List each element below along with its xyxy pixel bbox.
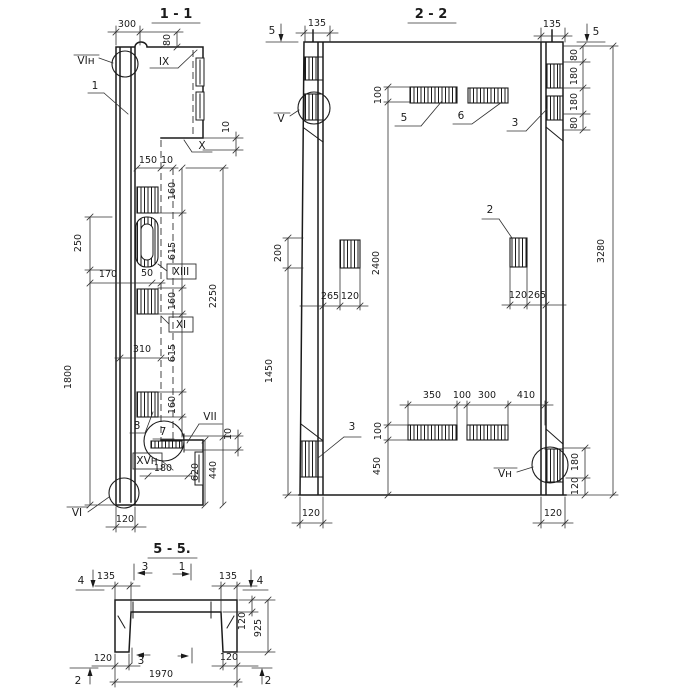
embedded-plate-2 (510, 238, 527, 267)
pos-3-bottom: 3 (349, 421, 356, 433)
dim-450: 450 (372, 457, 383, 475)
pos-6: 6 (458, 110, 465, 122)
dim-410: 410 (517, 390, 535, 401)
dim-615-1: 615 (167, 242, 178, 260)
embedded-plate-6 (468, 88, 508, 103)
dim-925: 925 (253, 619, 264, 637)
dim-10-step: 10 (161, 155, 173, 166)
dim-80-tr2: 80 (569, 117, 580, 129)
embedded-plate (467, 425, 508, 440)
pos-7: 7 (160, 426, 167, 438)
embedded-plate (137, 187, 158, 213)
rib-plate (302, 441, 316, 477)
callout-ix: IX (159, 56, 169, 68)
dim-160-3: 160 (167, 396, 178, 414)
dim-1800: 1800 (63, 365, 74, 389)
dim-620: 620 (190, 463, 201, 481)
dim-1970: 1970 (149, 669, 173, 680)
callout-vii: VII (203, 411, 216, 423)
dim-300: 300 (118, 19, 136, 30)
labels-layer: 30080VIн1IXX1015010160615160615160225044… (63, 18, 607, 687)
dim-120-mr: 120 (509, 290, 527, 301)
callout-xi: XI (176, 319, 186, 331)
dim-120-leg-l: 120 (94, 653, 112, 664)
dim-200: 200 (273, 244, 284, 262)
callout-vi: VI (72, 507, 82, 519)
marker-4-left: 4 (78, 575, 85, 587)
dim-180-tr2: 180 (569, 93, 580, 111)
rib-plate (547, 64, 560, 88)
section-2-2: 2 - 2 (266, 7, 618, 528)
embedded-plate (137, 289, 158, 314)
marker-4-right: 4 (257, 575, 264, 587)
dim-2250: 2250 (208, 284, 219, 308)
rib-plate (305, 94, 318, 120)
section-2-2-title: 2 - 2 (415, 7, 448, 22)
marker-1-top: 1 (179, 561, 186, 573)
pos-1: 1 (92, 80, 99, 92)
dim-80-tr1: 80 (569, 49, 580, 61)
marker-2-left: 2 (75, 675, 82, 687)
dim-135-right: 135 (543, 19, 561, 30)
marker-3-bottom: 3 (138, 655, 145, 667)
dim-615-2: 615 (167, 344, 178, 362)
dimension-ticks-5-5 (112, 583, 271, 685)
dim-350: 350 (423, 390, 441, 401)
callout-x: X (198, 140, 205, 152)
pos-5: 5 (401, 112, 408, 124)
rib-plate (547, 96, 560, 120)
dim-50: 50 (141, 268, 153, 279)
dim-120-ml: 120 (341, 291, 359, 302)
dim-80: 80 (162, 34, 173, 46)
callout-vi-n-top: VIн (77, 55, 94, 67)
dim-310: 310 (133, 344, 151, 355)
marker-5-right: 5 (593, 26, 600, 38)
callout-v: V (277, 113, 285, 125)
dim-120-br: 120 (570, 477, 581, 495)
dim-250: 250 (73, 234, 84, 252)
dim-120-br-col: 120 (544, 508, 562, 519)
dim-100-top: 100 (373, 86, 384, 104)
dim-100-b: 100 (453, 390, 471, 401)
dim-10-console: 10 (223, 428, 234, 440)
pos-8: 8 (134, 420, 141, 432)
dimension-ticks-2-2 (285, 30, 616, 526)
dim-440: 440 (208, 461, 219, 479)
dim-180-s11: 180 (154, 463, 172, 474)
dim-160-2: 160 (167, 292, 178, 310)
dim-120-s11: 120 (116, 514, 134, 525)
section-cut-arrows-2-2 (279, 34, 590, 42)
dim-10-top: 10 (221, 121, 232, 133)
dim-265-ml: 265 (321, 291, 339, 302)
dim-120-bl-col: 120 (302, 508, 320, 519)
callout-v-n: Vн (498, 468, 512, 480)
dim-160-1: 160 (167, 182, 178, 200)
rib-plate (305, 57, 318, 80)
section-1-1-title: 1 - 1 (160, 7, 193, 22)
dim-170: 170 (99, 269, 117, 280)
section-5-5-title: 5 - 5. (153, 542, 190, 557)
marker-5-left: 5 (269, 25, 276, 37)
embedded-plate (137, 392, 158, 417)
dim-1450: 1450 (264, 359, 275, 383)
lifting-slot-inner (141, 224, 153, 260)
dim-135-s55-l: 135 (97, 571, 115, 582)
pos-3-top: 3 (512, 117, 519, 129)
engineering-drawing: 1 - 1 2 - 2 (0, 0, 700, 700)
dim-150: 150 (139, 155, 157, 166)
marker-2-right: 2 (265, 675, 272, 687)
dim-120-slab: 120 (237, 612, 248, 630)
dim-135-s55-r: 135 (219, 571, 237, 582)
callout-xiii: XIII (173, 266, 189, 278)
pos-2: 2 (487, 204, 494, 216)
marker-3-top: 3 (142, 561, 149, 573)
rib-plate (546, 449, 560, 482)
dim-135-left: 135 (308, 18, 326, 29)
dim-100-bl: 100 (373, 422, 384, 440)
dim-180-tr1: 180 (569, 67, 580, 85)
dim-180-br: 180 (570, 453, 581, 471)
dim-300-b: 300 (478, 390, 496, 401)
dim-2400: 2400 (371, 251, 382, 275)
dim-3280: 3280 (596, 239, 607, 263)
dim-120-leg-r: 120 (220, 652, 238, 663)
bearing-plate-7 (151, 441, 182, 448)
embedded-plate-5 (410, 87, 457, 103)
embedded-plate (408, 425, 457, 440)
dim-265-mr: 265 (528, 290, 546, 301)
channel-marks-5-5 (118, 602, 234, 628)
embedded-plate (340, 240, 360, 268)
